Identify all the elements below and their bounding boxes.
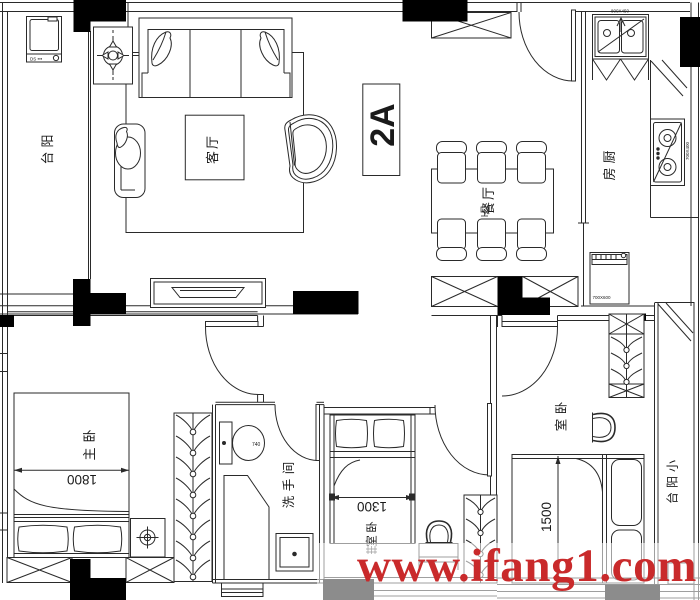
svg-text:房: 房 — [602, 167, 617, 180]
svg-text:小: 小 — [666, 460, 680, 472]
svg-text:www.ifang1.com: www.ifang1.com — [357, 540, 697, 592]
svg-text:台: 台 — [665, 492, 680, 504]
svg-text:740: 740 — [252, 442, 261, 448]
svg-text:700X600: 700X600 — [593, 295, 612, 300]
svg-text:间: 间 — [282, 462, 296, 475]
svg-text:主: 主 — [82, 447, 97, 460]
svg-text:800X450: 800X450 — [611, 9, 630, 14]
svg-text:阳: 阳 — [666, 476, 680, 488]
svg-text:餐厅: 餐厅 — [481, 185, 496, 215]
svg-text:700X400: 700X400 — [685, 141, 690, 160]
svg-text:卧: 卧 — [555, 402, 569, 415]
svg-text:洗: 洗 — [282, 495, 296, 508]
svg-text:厨: 厨 — [602, 150, 617, 163]
svg-text:2A: 2A — [364, 103, 402, 146]
svg-text:台: 台 — [40, 151, 55, 164]
svg-text:1800: 1800 — [67, 472, 97, 487]
svg-text:1500: 1500 — [539, 502, 554, 532]
svg-text:卧: 卧 — [82, 429, 97, 442]
svg-text:卧: 卧 — [366, 521, 379, 533]
svg-text:室: 室 — [554, 419, 569, 432]
svg-text:1300: 1300 — [357, 499, 387, 514]
svg-text:DS •••: DS ••• — [30, 57, 43, 62]
svg-text:阳: 阳 — [40, 134, 55, 147]
svg-text:手: 手 — [282, 479, 296, 492]
svg-text:客厅: 客厅 — [205, 134, 220, 164]
